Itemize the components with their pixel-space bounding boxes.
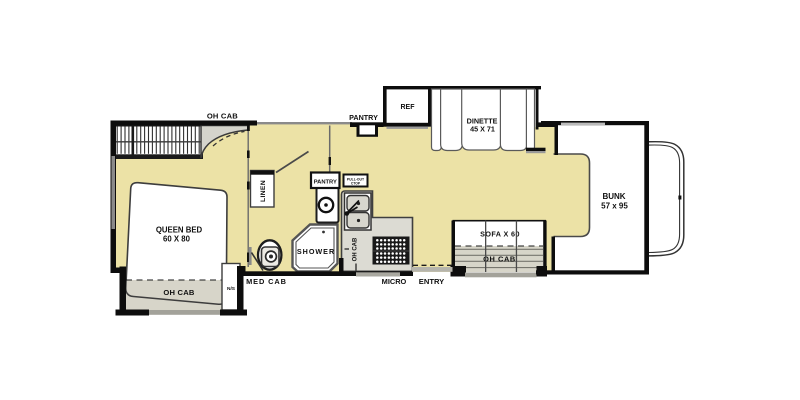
svg-text:ENTRY: ENTRY xyxy=(419,277,444,286)
svg-text:60 X 80: 60 X 80 xyxy=(163,235,191,244)
svg-text:45 X 71: 45 X 71 xyxy=(470,124,495,133)
svg-text:OH CAB: OH CAB xyxy=(163,288,194,297)
svg-text:CTOP: CTOP xyxy=(351,182,361,186)
svg-text:PANTRY: PANTRY xyxy=(349,113,378,122)
svg-text:57 x 95: 57 x 95 xyxy=(601,201,628,210)
svg-text:OH CAB: OH CAB xyxy=(353,237,359,261)
svg-text:REF: REF xyxy=(401,104,416,111)
svg-text:OH CAB: OH CAB xyxy=(483,254,516,263)
svg-text:N/S: N/S xyxy=(227,286,236,292)
svg-text:BUNK: BUNK xyxy=(602,192,625,201)
svg-text:PANTRY: PANTRY xyxy=(314,180,337,186)
svg-text:MICRO: MICRO xyxy=(382,277,407,286)
svg-text:SHOWER: SHOWER xyxy=(297,247,335,256)
svg-text:LINEN: LINEN xyxy=(260,180,267,202)
svg-text:MED CAB: MED CAB xyxy=(246,277,287,286)
svg-text:OH CAB: OH CAB xyxy=(207,111,238,120)
svg-text:QUEEN BED: QUEEN BED xyxy=(156,225,203,234)
